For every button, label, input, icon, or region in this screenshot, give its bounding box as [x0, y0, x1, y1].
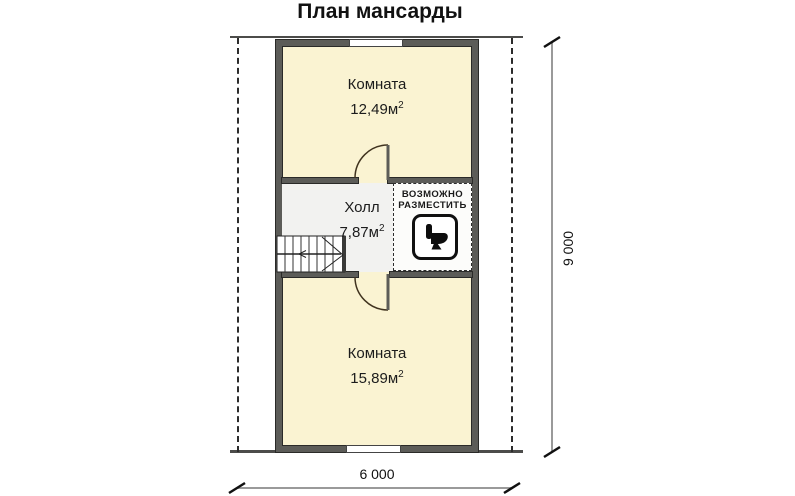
page-title: План мансарды: [230, 0, 530, 24]
wall-bottom-room-left: [282, 272, 358, 277]
top-room-area: 12,49м2: [282, 100, 472, 118]
top-room-label: Комната 12,49м2: [282, 76, 472, 118]
eave-line-top: [230, 36, 523, 38]
horizontal-dimension-label: 6 000: [317, 466, 437, 482]
hall-name: Холл: [282, 199, 442, 216]
bottom-room-label: Комната 15,89м2: [282, 345, 472, 387]
bottom-room-area: 15,89м2: [282, 369, 472, 387]
window-bottom: [346, 445, 401, 453]
vertical-dimension-line: [544, 37, 560, 457]
eave-dashed-line-right: [511, 38, 513, 452]
hall-area: 7,87м2: [282, 223, 442, 241]
hall-label: Холл 7,87м2: [282, 199, 442, 241]
window-top: [349, 39, 403, 47]
vertical-dimension-label: 9 000: [560, 217, 580, 279]
bottom-room-name: Комната: [282, 345, 472, 362]
wall-bottom-room-right: [390, 272, 472, 277]
top-room-name: Комната: [282, 76, 472, 93]
attic-floor-plan: План мансарды ВОЗМОЖНО РАЗМЕСТИТЬ Комнат…: [0, 0, 795, 496]
wall-top-room-left: [282, 178, 358, 183]
eave-dashed-line-left: [237, 38, 239, 452]
horizontal-dimension-line: [229, 483, 520, 493]
